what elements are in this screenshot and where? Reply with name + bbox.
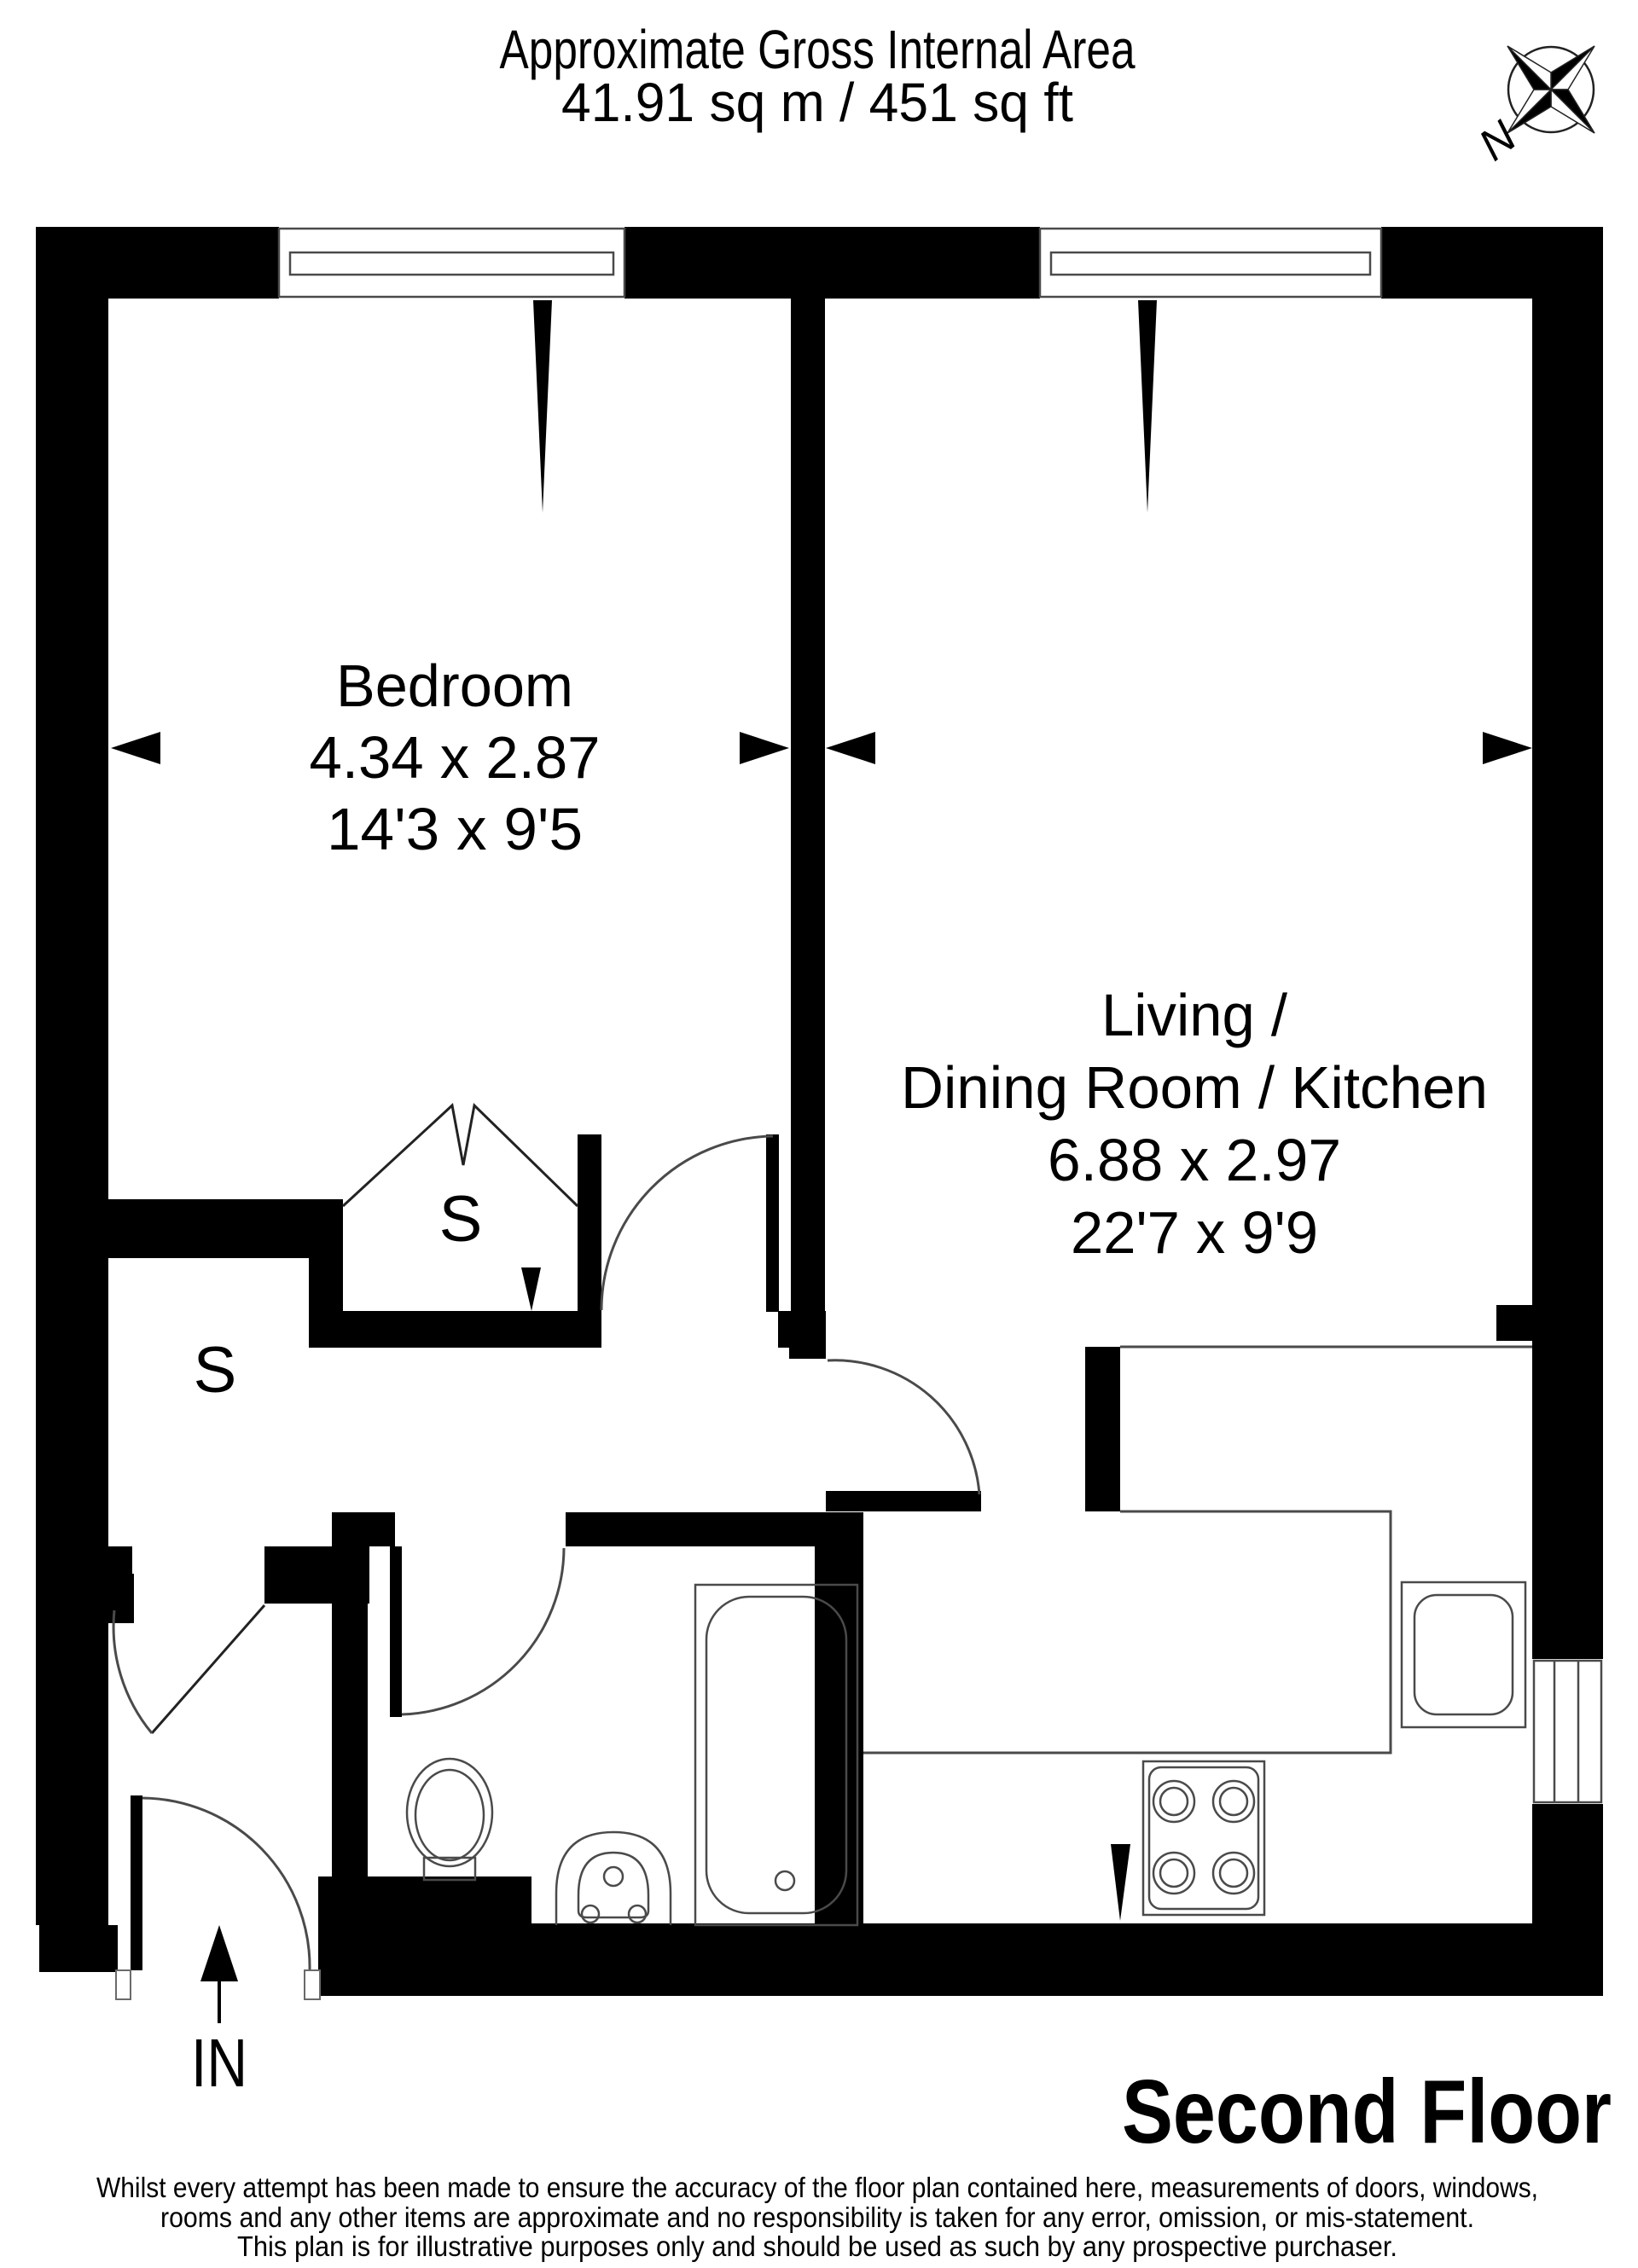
dim-arrow-bedroom-right — [740, 732, 789, 764]
dim-arrow-bedroom-left — [111, 732, 160, 764]
basin — [556, 1832, 671, 1925]
hob-marker — [1111, 1844, 1130, 1921]
disclaimer-line2: rooms and any other items are approximat… — [160, 2201, 1474, 2233]
bathroom-fixtures — [407, 1585, 857, 1925]
wall-bedroom-bottom — [36, 1199, 309, 1258]
wall-closet-divider — [309, 1199, 343, 1311]
wall-bath-right — [815, 1546, 863, 1923]
bedroom-window-marker — [533, 300, 552, 513]
wall-divider-stub — [789, 1348, 826, 1359]
entrance-label: IN — [191, 2025, 247, 2101]
counter-inner-edge — [863, 1511, 1391, 1753]
wall-entrance-right-block — [318, 1876, 392, 1972]
wall-left-foot — [39, 1925, 118, 1972]
dim-arrow-living-left — [826, 732, 875, 764]
kitchen-window — [1534, 1661, 1601, 1802]
sink — [1402, 1582, 1525, 1727]
left-closet-door-leaf — [152, 1605, 264, 1733]
wall-divider-foot — [778, 1311, 826, 1348]
bathroom-door-arc — [402, 1548, 564, 1714]
page-area: 41.91 sq m / 451 sq ft — [561, 72, 1073, 133]
wall-kitchen-block — [1085, 1347, 1120, 1511]
kitchen-fixtures — [863, 1347, 1532, 1915]
living-window — [1040, 229, 1381, 297]
wall-left — [36, 227, 108, 1925]
wall-right-nib — [1496, 1305, 1532, 1341]
closet-middle-label: S — [439, 1183, 483, 1256]
closet-left-label: S — [194, 1334, 237, 1407]
wall-bath-left — [332, 1546, 368, 1876]
entrance-sill-right — [305, 1970, 320, 1999]
hob — [1143, 1761, 1264, 1915]
floor-plan-svg: N Approximate Gross Internal Area 41.91 … — [0, 0, 1638, 2268]
floorplan-page: N Approximate Gross Internal Area 41.91 … — [0, 0, 1638, 2268]
entrance-sill-left — [116, 1970, 131, 1999]
living-door-leaf — [826, 1491, 981, 1511]
entrance-arrow — [200, 1925, 238, 2023]
toilet — [407, 1759, 492, 1880]
closet-marker — [521, 1267, 541, 1311]
compass: N — [1470, 46, 1594, 171]
disclaimer-line1: Whilst every attempt has been made to en… — [96, 2172, 1538, 2203]
wall-bottom — [318, 1923, 1603, 1996]
bedroom-name: Bedroom — [336, 653, 573, 719]
entrance-door-leaf — [131, 1795, 142, 1970]
left-closet-door-arc — [113, 1610, 152, 1733]
entrance-door-arc — [142, 1798, 310, 1970]
living-door-arc — [828, 1360, 979, 1494]
bedroom-door-arc — [601, 1136, 773, 1310]
bedroom-imperial: 14'3 x 9'5 — [327, 796, 583, 862]
bedroom-window — [279, 229, 624, 297]
wall-right-upper — [1532, 227, 1603, 1659]
bedroom-metric: 4.34 x 2.87 — [310, 724, 601, 791]
wall-bath-top-left — [332, 1512, 395, 1546]
windows — [279, 229, 1601, 1802]
disclaimer-line3: This plan is for illustrative purposes o… — [237, 2230, 1397, 2262]
compass-star — [1507, 46, 1594, 133]
living-imperial: 22'7 x 9'9 — [1071, 1199, 1318, 1266]
wall-bath-top-right — [566, 1512, 863, 1546]
bedroom-door-leaf — [766, 1134, 779, 1312]
dim-arrow-living-right — [1483, 732, 1532, 764]
living-metric: 6.88 x 2.97 — [1048, 1127, 1341, 1193]
wall-hall-bump — [108, 1574, 134, 1623]
bathroom-door-leaf — [390, 1546, 402, 1717]
floor-title: Second Floor — [1122, 2062, 1612, 2162]
living-name-line2: Dining Room / Kitchen — [901, 1054, 1488, 1121]
living-window-marker — [1138, 300, 1157, 513]
wall-closet-bottom — [309, 1311, 601, 1348]
wall-top-middle — [624, 227, 1040, 299]
wall-divider — [791, 299, 825, 1311]
living-name-line1: Living / — [1101, 982, 1288, 1048]
